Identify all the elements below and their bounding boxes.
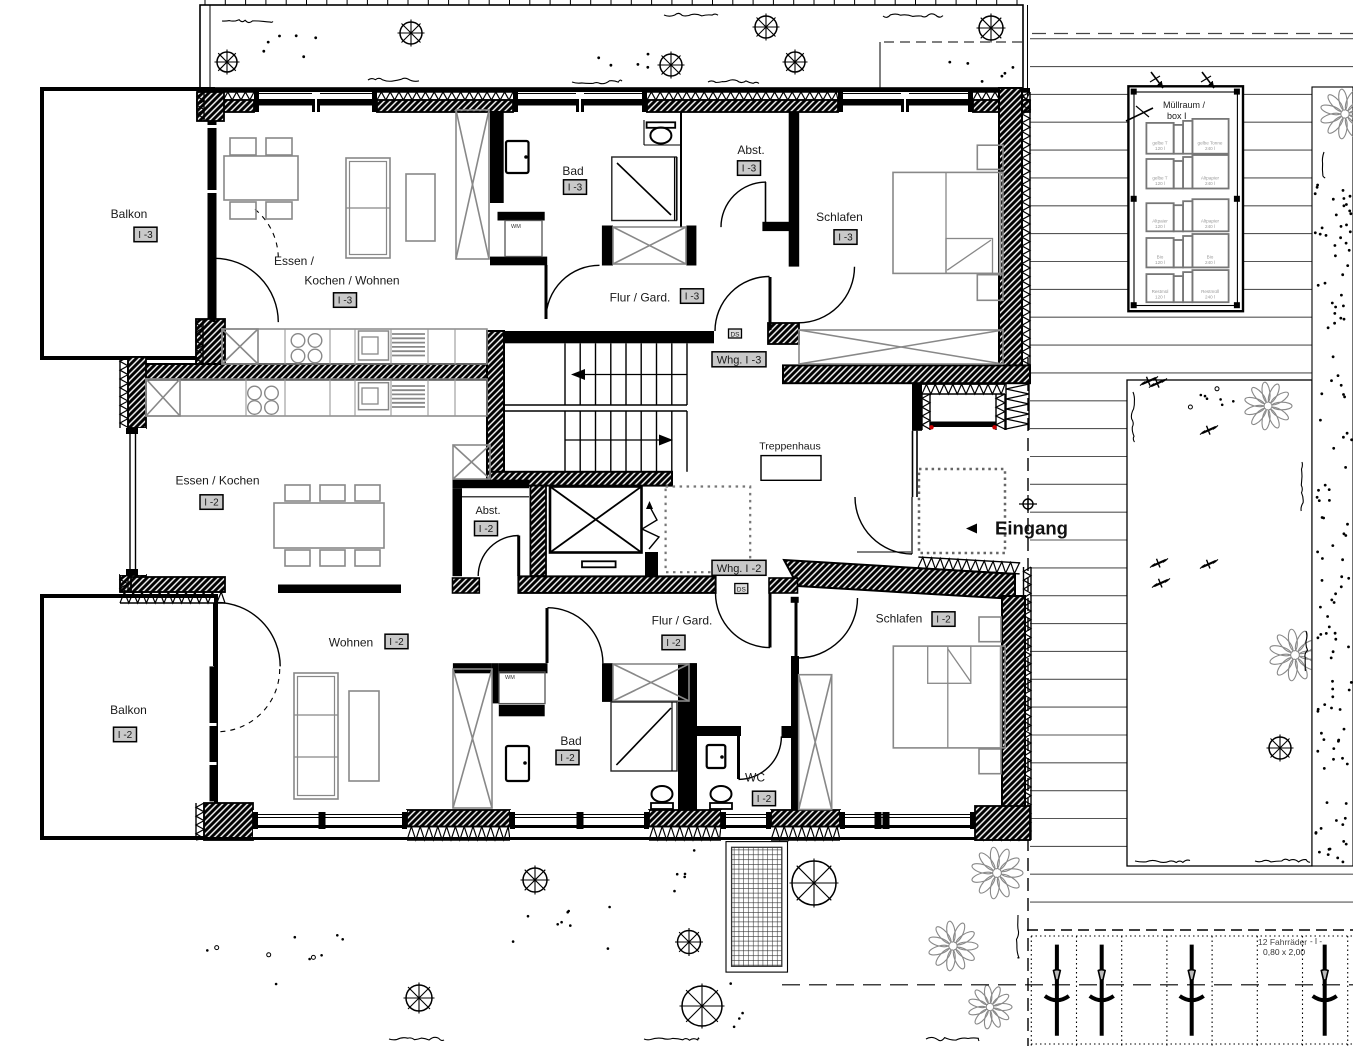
svg-text:Schlafen: Schlafen bbox=[816, 210, 863, 224]
svg-text:WM: WM bbox=[505, 675, 515, 681]
svg-text:Abst.: Abst. bbox=[475, 505, 500, 517]
svg-text:Altpapier: Altpapier bbox=[1201, 176, 1220, 181]
svg-text:120 l: 120 l bbox=[1155, 181, 1165, 186]
svg-text:I -2: I -2 bbox=[757, 794, 772, 805]
svg-text:Altpapier: Altpapier bbox=[1201, 218, 1220, 223]
svg-text:Bad: Bad bbox=[562, 164, 583, 178]
svg-text:Essen /: Essen / bbox=[274, 254, 315, 268]
svg-text:Bio: Bio bbox=[1207, 254, 1214, 259]
svg-text:I -2: I -2 bbox=[389, 637, 404, 648]
svg-text:Treppenhaus: Treppenhaus bbox=[759, 441, 821, 453]
svg-text:Flur / Gard.: Flur / Gard. bbox=[610, 291, 671, 305]
svg-text:Balkon: Balkon bbox=[110, 703, 147, 717]
svg-text:240 l: 240 l bbox=[1205, 224, 1215, 229]
svg-text:120 l: 120 l bbox=[1155, 224, 1165, 229]
svg-text:Müllraum /: Müllraum / bbox=[1163, 100, 1206, 110]
svg-text:Restmüll: Restmüll bbox=[1201, 289, 1219, 294]
svg-text:240 l: 240 l bbox=[1205, 146, 1215, 151]
svg-text:Altpaier: Altpaier bbox=[1152, 218, 1168, 223]
svg-text:Balkon: Balkon bbox=[111, 207, 148, 221]
svg-text:120 l: 120 l bbox=[1155, 146, 1165, 151]
svg-text:I -2: I -2 bbox=[560, 753, 575, 764]
svg-text:Restmül: Restmül bbox=[1152, 289, 1169, 294]
svg-text:WC: WC bbox=[745, 771, 765, 785]
svg-text:Whg. I -2: Whg. I -2 bbox=[717, 563, 762, 575]
svg-text:I -2: I -2 bbox=[479, 524, 494, 535]
svg-text:Schlafen: Schlafen bbox=[876, 612, 923, 626]
svg-text:Flur / Gard.: Flur / Gard. bbox=[652, 614, 713, 628]
svg-text:240 l: 240 l bbox=[1205, 295, 1215, 300]
svg-text:240 l: 240 l bbox=[1205, 260, 1215, 265]
svg-text:I -3: I -3 bbox=[138, 230, 153, 241]
svg-text:120 l: 120 l bbox=[1155, 295, 1165, 300]
svg-text:gelbe T: gelbe T bbox=[1152, 141, 1167, 146]
svg-text:gelbe Tonne: gelbe Tonne bbox=[1198, 141, 1223, 146]
svg-text:Kochen / Wohnen: Kochen / Wohnen bbox=[304, 274, 399, 288]
svg-text:I -2: I -2 bbox=[204, 498, 219, 509]
svg-text:240 l: 240 l bbox=[1205, 181, 1215, 186]
svg-text:WM: WM bbox=[511, 224, 521, 230]
svg-text:DS: DS bbox=[737, 587, 747, 594]
svg-text:gelbe T: gelbe T bbox=[1152, 176, 1167, 181]
svg-text:120 l: 120 l bbox=[1155, 260, 1165, 265]
svg-text:Eingang: Eingang bbox=[995, 518, 1068, 539]
svg-text:12 Fahrräder: 12 Fahrräder bbox=[1258, 937, 1307, 947]
svg-text:I -2: I -2 bbox=[118, 730, 133, 741]
svg-text:I -3: I -3 bbox=[568, 183, 583, 194]
svg-text:Essen / Kochen: Essen / Kochen bbox=[175, 474, 259, 488]
svg-text:Wohnen: Wohnen bbox=[329, 636, 373, 650]
svg-text:DS: DS bbox=[730, 332, 740, 339]
svg-text:I -3: I -3 bbox=[742, 164, 757, 175]
svg-text:I -3: I -3 bbox=[338, 296, 353, 307]
svg-text:- I -: - I - bbox=[1310, 937, 1322, 946]
svg-text:I -2: I -2 bbox=[666, 638, 681, 649]
svg-text:Bio: Bio bbox=[1157, 254, 1164, 259]
svg-text:I -3: I -3 bbox=[685, 292, 700, 303]
svg-text:Abst.: Abst. bbox=[737, 143, 764, 157]
svg-text:I -3: I -3 bbox=[838, 233, 853, 244]
svg-text:Whg. I -3: Whg. I -3 bbox=[717, 354, 762, 366]
svg-text:I -2: I -2 bbox=[936, 615, 951, 626]
svg-text:box I: box I bbox=[1167, 111, 1187, 121]
svg-text:Bad: Bad bbox=[560, 734, 581, 748]
svg-text:0,80 x 2,00: 0,80 x 2,00 bbox=[1263, 947, 1305, 957]
